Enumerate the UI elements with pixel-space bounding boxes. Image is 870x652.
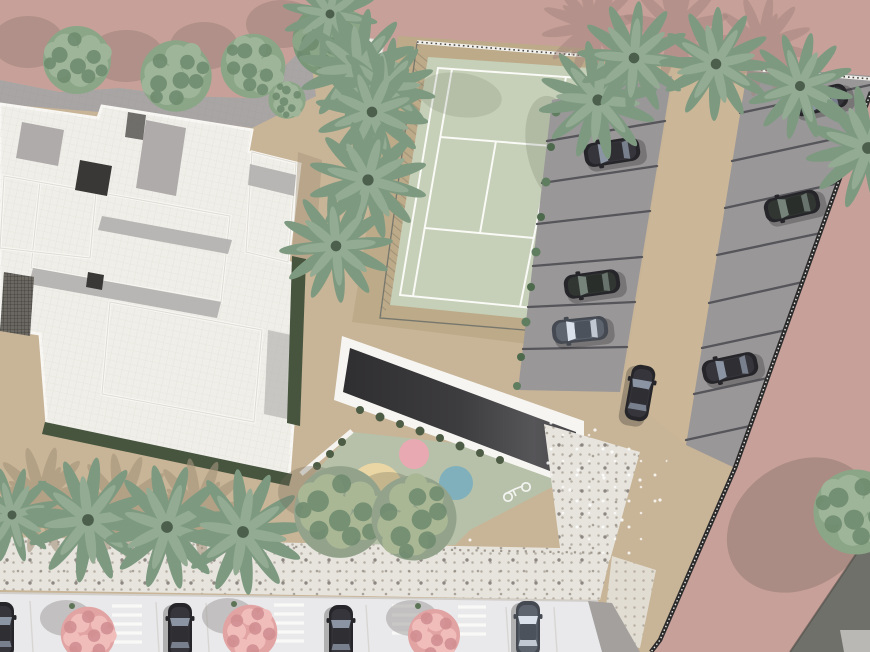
planter-sprig — [231, 601, 237, 607]
corner-gray-slab — [840, 630, 870, 652]
planter-sprig — [69, 603, 75, 609]
residential-building-roof — [0, 104, 322, 486]
street-car — [163, 603, 195, 652]
street-car — [511, 601, 543, 652]
skylight-grate — [0, 272, 34, 336]
planter-sprig — [415, 603, 421, 609]
playground-circle-pink — [399, 439, 429, 469]
street-car — [324, 605, 356, 652]
site-plan-rendering — [0, 0, 870, 652]
